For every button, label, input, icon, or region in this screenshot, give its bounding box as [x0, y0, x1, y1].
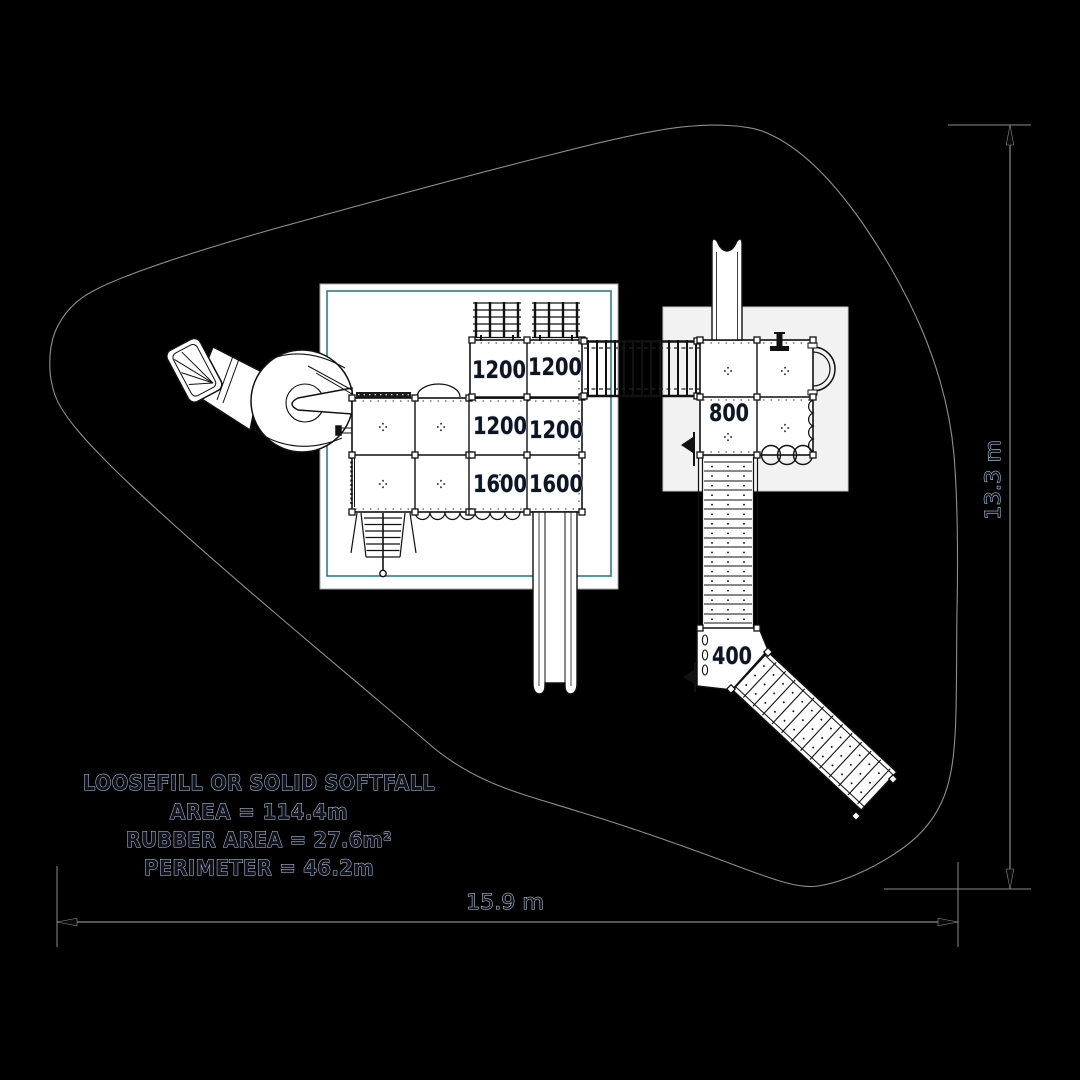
platform-label-1200-d: 1200	[529, 416, 583, 444]
width-dimension-label: 15.9 m	[466, 890, 544, 914]
platform-label-800: 800	[709, 399, 749, 427]
dim-arrow-left-icon	[57, 918, 77, 926]
stairway	[699, 457, 758, 628]
height-dimension: 13.3 m	[884, 125, 1031, 889]
info-line-perimeter: PERIMETER = 46.2m	[144, 856, 374, 880]
site-plan-drawing: 1200 1200 1200 1200 1600 1600 800 400 15…	[0, 0, 1080, 1080]
info-line-surface-type: LOOSEFILL OR SOLID SOFTFALL	[83, 771, 435, 795]
platform-label-1200-a: 1200	[472, 356, 526, 384]
diagonal-ramp	[733, 652, 897, 810]
straight-slide-up	[712, 239, 742, 340]
info-line-area: AREA = 114.4m	[170, 800, 348, 824]
height-dimension-label: 13.3 m	[981, 440, 1005, 520]
platform-label-1200-c: 1200	[473, 412, 527, 440]
playground-plan-canvas: { "info_box": { "line1": "LOOSEFILL OR S…	[0, 0, 1080, 1080]
info-line-rubber-area: RUBBER AREA = 27.6m²	[126, 828, 392, 852]
platform-label-1600-a: 1600	[473, 470, 527, 498]
dim-arrow-down-icon	[1006, 869, 1014, 889]
platform-label-1600-b: 1600	[529, 470, 583, 498]
straight-slide-down	[533, 512, 577, 694]
platform-label-400: 400	[712, 642, 752, 670]
softfall-info-box: LOOSEFILL OR SOLID SOFTFALL AREA = 114.4…	[83, 771, 435, 880]
dim-arrow-up-icon	[1006, 125, 1014, 145]
dim-arrow-right-icon	[938, 918, 958, 926]
platform-label-1200-b: 1200	[528, 353, 582, 381]
